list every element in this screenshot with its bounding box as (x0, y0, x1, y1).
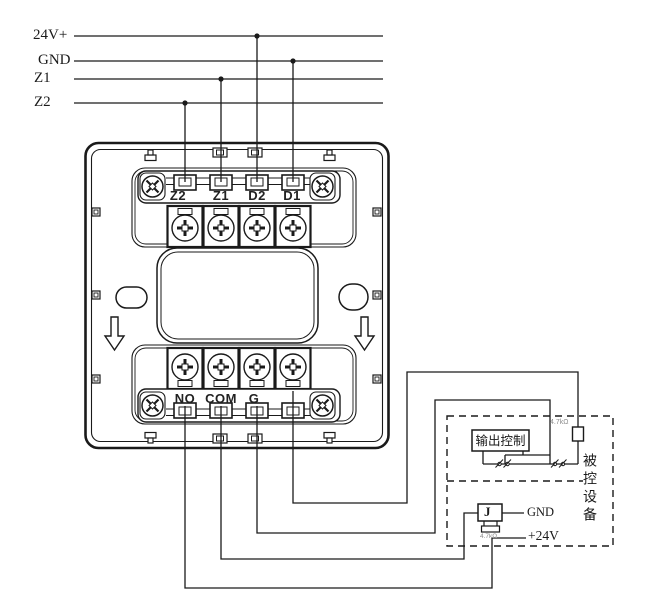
terminal-label-d1: D1 (275, 188, 309, 203)
right-oval-slot (339, 284, 368, 310)
terminal-label-com: COM (204, 391, 238, 406)
right-side-tab (373, 208, 381, 216)
terminal-label-d2: D2 (240, 188, 274, 203)
bus-label-z1: Z1 (34, 70, 51, 87)
terminal-screw-icon (168, 206, 203, 247)
top-edge-tab (213, 148, 227, 157)
module-window (157, 248, 318, 343)
corner-screw-icon (142, 395, 163, 416)
bottom-edge-tab (213, 434, 227, 443)
top-edge-tab (248, 148, 262, 157)
terminal-label-no: NO (168, 391, 202, 406)
corner-screw-icon (312, 395, 333, 416)
corner-screw-icon (312, 176, 333, 197)
eol-resistor-value: 4.7kΩ (550, 419, 568, 426)
wiring-diagram: 24V+ GND Z1 Z2 Z2 Z1 D2 D1 NO COM G 输出控制… (0, 0, 652, 615)
left-oval-slot (116, 287, 147, 308)
terminal-screw-icon (204, 206, 239, 247)
right-side-tab (373, 375, 381, 383)
left-side-tab (92, 375, 100, 383)
right-side-tab (373, 291, 381, 299)
relay-shunt-resistor-symbol (482, 521, 500, 532)
relay-designator: J (484, 504, 491, 520)
left-side-tab (92, 291, 100, 299)
controlled-device-label: 被控设备 (582, 453, 596, 525)
terminal-label-z2: Z2 (161, 188, 195, 203)
relay-resistor-value: 4.7kΩ (480, 533, 497, 540)
bottom-edge-tab (248, 434, 262, 443)
terminal-screw-icon (204, 348, 239, 389)
corner-screw-icon (142, 176, 163, 197)
terminal-label-g: G (237, 391, 271, 406)
bus-junction-dots (182, 33, 295, 105)
power-loop-bus-lines (74, 36, 383, 103)
diagram-artwork (0, 0, 652, 615)
bus-label-gnd: GND (38, 52, 71, 69)
terminal-screw-icon (240, 206, 275, 247)
terminal-screw-icon (276, 206, 311, 247)
terminal-screw-icon (168, 348, 203, 389)
output-control-label: 输出控制 (472, 431, 529, 450)
terminal-screw-icon (240, 348, 275, 389)
terminal-label-z1: Z1 (204, 188, 238, 203)
resistor-symbol (573, 427, 584, 441)
left-side-tab (92, 208, 100, 216)
bus-label-24v: 24V+ (33, 27, 67, 44)
bus-label-z2: Z2 (34, 94, 51, 111)
terminal-screw-icon (276, 348, 311, 389)
gnd-label: GND (527, 505, 554, 520)
plus24v-label: +24V (528, 528, 559, 544)
